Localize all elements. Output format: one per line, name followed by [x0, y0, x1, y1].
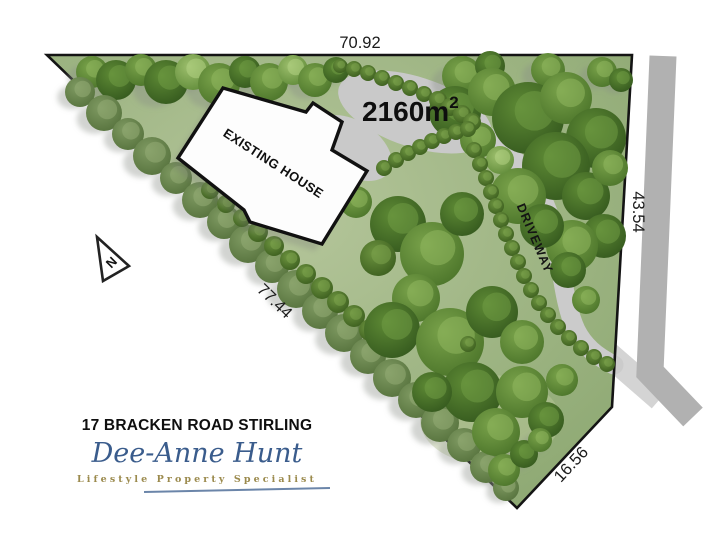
area-exponent: 2 [449, 93, 458, 112]
footer-branding: 17 BRACKEN ROAD STIRLING Dee-Anne Hunt L… [36, 417, 358, 485]
dimension-top: 70.92 [339, 34, 380, 52]
north-arrow-icon: N [97, 237, 129, 281]
area-label: 2160m2 [362, 93, 459, 127]
agent-signature: Dee-Anne Hunt [36, 440, 358, 468]
property-address: 17 BRACKEN ROAD STIRLING [36, 417, 358, 435]
agent-name: Dee-Anne Hunt [92, 438, 303, 469]
agent-tagline: Lifestyle Property Specialist [36, 474, 358, 485]
dimension-right: 43.54 [629, 191, 647, 232]
road-surface [650, 56, 693, 417]
site-plan-canvas: EXISTING HOUSE 70.92 43.54 77.44 16.56 2… [0, 0, 720, 540]
area-value: 2160m [362, 96, 449, 127]
